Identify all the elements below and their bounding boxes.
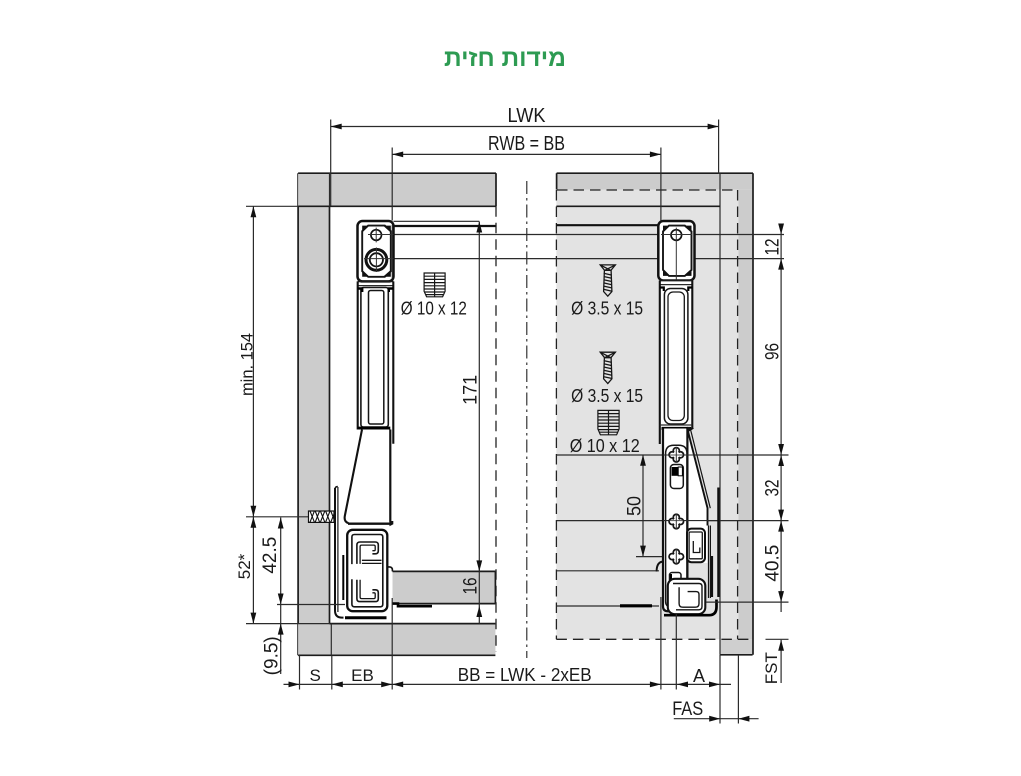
svg-text:Ø 3.5 x 15: Ø 3.5 x 15 xyxy=(571,299,643,319)
svg-text:52*: 52* xyxy=(235,553,254,579)
svg-text:12: 12 xyxy=(763,239,784,256)
svg-text:Ø 10 x 12: Ø 10 x 12 xyxy=(401,299,467,319)
svg-text:50: 50 xyxy=(625,496,646,516)
svg-text:32: 32 xyxy=(763,480,784,497)
svg-text:RWB = BB: RWB = BB xyxy=(488,133,565,155)
svg-text:96: 96 xyxy=(763,343,784,360)
svg-text:40.5: 40.5 xyxy=(763,545,784,582)
svg-text:min. 154: min. 154 xyxy=(238,333,257,396)
svg-text:מידות חזית: מידות חזית xyxy=(444,45,566,72)
svg-text:(9.5): (9.5) xyxy=(262,636,283,675)
svg-text:LWK: LWK xyxy=(508,105,547,127)
svg-text:S: S xyxy=(310,666,321,685)
svg-text:Ø 3.5 x 15: Ø 3.5 x 15 xyxy=(571,386,643,406)
svg-text:171: 171 xyxy=(461,375,482,405)
svg-text:FAS: FAS xyxy=(672,699,703,720)
svg-text:42.5: 42.5 xyxy=(260,537,281,574)
svg-text:A: A xyxy=(693,666,705,686)
svg-text:EB: EB xyxy=(351,666,374,685)
svg-text:BB = LWK - 2xEB: BB = LWK - 2xEB xyxy=(458,665,592,685)
svg-text:Ø 10 x 12: Ø 10 x 12 xyxy=(570,436,640,456)
svg-text:FST: FST xyxy=(762,652,781,684)
svg-text:16: 16 xyxy=(461,578,482,595)
